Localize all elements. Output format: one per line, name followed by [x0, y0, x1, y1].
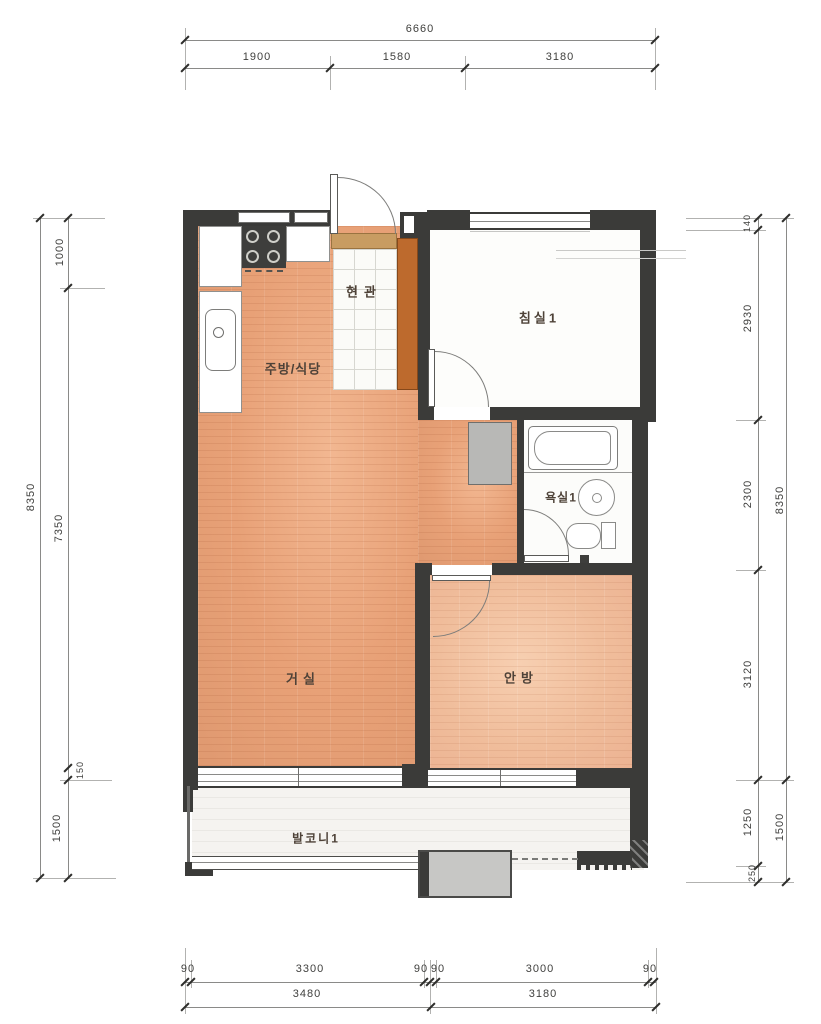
- dim-right-s6: 250: [747, 864, 757, 882]
- pillar-living-master: [402, 764, 428, 788]
- extension-line: [686, 218, 794, 219]
- wall-bathroom-left: [517, 420, 524, 570]
- party-wall-lines: [556, 250, 686, 259]
- refrigerator: [199, 226, 242, 287]
- dim-top-s3: 3180: [546, 51, 574, 63]
- burner-icon: [267, 250, 280, 263]
- wall-left: [183, 210, 198, 790]
- entrance-shoe-cabinet: [397, 238, 418, 390]
- upper-cabinet-inset: [238, 212, 290, 223]
- window-mullion: [500, 770, 501, 786]
- balcony-bottom-right-bar: [577, 851, 632, 865]
- window-rail: [198, 781, 402, 782]
- dim-bottom-s3: 90: [414, 963, 428, 975]
- room-label-bathroom: 욕실1: [545, 489, 577, 506]
- extension-line: [736, 420, 766, 421]
- entrance-door-arc: [338, 177, 396, 234]
- wall-bedroom1-bottom-b: [490, 407, 656, 420]
- wall-living-master: [415, 575, 430, 768]
- washbasin-drain: [592, 493, 602, 503]
- kitchen-counter-right: [286, 226, 330, 262]
- dim-line-top-total: [185, 40, 655, 41]
- dim-left-s1: 1000: [54, 238, 66, 266]
- balcony-rail: [192, 856, 418, 870]
- bath-divider-line: [524, 472, 632, 473]
- dim-left-s3: 150: [75, 761, 85, 779]
- dim-top-s1: 1900: [243, 51, 271, 63]
- room-label-kitchen: 주방/식당: [265, 359, 321, 378]
- pad-left-edge: [420, 852, 429, 896]
- wall-master-window-right: [576, 768, 633, 788]
- balcony-right-column: [630, 768, 648, 868]
- dim-left-s2: 7350: [53, 514, 65, 542]
- master-balcony-window: [428, 768, 576, 788]
- window-rail: [428, 775, 576, 776]
- dim-right-s2: 2930: [742, 304, 754, 332]
- dim-top-s2: 1580: [383, 51, 411, 63]
- gas-stove: [242, 226, 286, 268]
- dim-bottom-s4: 90: [431, 963, 445, 975]
- balcony-left-edge-line: [187, 786, 190, 870]
- room-label-bedroom1: 침실1: [519, 308, 559, 327]
- toilet-bowl: [566, 523, 601, 549]
- bedroom1-window-sill-line: [470, 231, 590, 232]
- floor-plan: 현관 침실1 주방/식당 욕실1 거실 안방 발코니1 6660 1900 15…: [0, 0, 821, 1024]
- dim-bottom-s2: 3300: [296, 963, 324, 975]
- dim-right-outer-top: 8350: [774, 486, 786, 514]
- dim-left-s4: 1500: [51, 814, 63, 842]
- sink-bowl: [205, 309, 236, 371]
- dim-bottom-s1: 90: [181, 963, 195, 975]
- stove-knobs: [245, 270, 283, 272]
- upper-cabinet-inset: [294, 212, 328, 223]
- toilet-tank: [601, 522, 616, 549]
- wall-bedroom1-top-left: [427, 210, 470, 230]
- extension-line: [330, 56, 331, 90]
- burner-icon: [246, 230, 259, 243]
- dim-left-outer: 8350: [25, 483, 37, 511]
- dim-line-left-outer: [40, 218, 41, 878]
- duct-shaft: [468, 422, 512, 485]
- window-mullion: [298, 768, 299, 786]
- dim-right-s4: 3120: [742, 660, 754, 688]
- dim-right-outer-bottom: 1500: [774, 813, 786, 841]
- balcony-dashed-rail: [512, 858, 578, 860]
- extension-line: [736, 570, 766, 571]
- dim-line-right-inner: [758, 218, 759, 882]
- dim-line-top-segments: [185, 68, 655, 69]
- burner-icon: [246, 250, 259, 263]
- dim-line-bottom-totals: [185, 1007, 656, 1008]
- window-rail: [470, 221, 590, 222]
- dim-bottom-t1: 3480: [293, 988, 321, 1000]
- wall-bedroom1-bottom-a: [418, 407, 434, 420]
- window-rail: [428, 781, 576, 782]
- dim-bottom-s6: 90: [643, 963, 657, 975]
- equipment-pad: [418, 850, 512, 898]
- entrance-threshold: [331, 233, 397, 249]
- floor-entrance-tiles: [333, 249, 397, 390]
- extension-line: [33, 878, 116, 879]
- living-balcony-window: [198, 766, 402, 788]
- bathtub-inner: [534, 431, 611, 465]
- rail-line: [192, 862, 418, 863]
- bedroom1-window: [470, 212, 590, 230]
- dim-top-total: 6660: [406, 23, 434, 35]
- burner-icon: [267, 230, 280, 243]
- dim-bottom-t2: 3180: [529, 988, 557, 1000]
- room-label-living: 거실: [286, 669, 320, 688]
- wall-teeth: [577, 865, 632, 870]
- dim-bottom-s5: 3000: [526, 963, 554, 975]
- bathroom-door-leaf: [524, 555, 569, 562]
- room-label-entrance: 현관: [346, 282, 382, 301]
- wall-master-top-b: [492, 563, 648, 575]
- extension-line: [686, 882, 794, 883]
- dim-right-s3: 2300: [742, 480, 754, 508]
- room-label-balcony: 발코니1: [292, 830, 340, 847]
- window-rail: [198, 774, 402, 775]
- entrance-door-leaf: [330, 174, 338, 234]
- sink-faucet-icon: [213, 327, 224, 338]
- wall-master-top-a: [415, 563, 432, 575]
- wall-hatch: [630, 840, 648, 868]
- bedroom1-door-leaf: [428, 349, 435, 407]
- room-label-master: 안방: [504, 668, 538, 687]
- entry-jamb-slot: [404, 216, 414, 233]
- wall-right-lower: [632, 420, 648, 768]
- wall-right-upper: [640, 210, 656, 422]
- dim-right-s5: 1250: [742, 808, 754, 836]
- dim-line-right-outer: [786, 218, 787, 882]
- dim-right-s1: 140: [742, 214, 752, 232]
- extension-line: [465, 56, 466, 90]
